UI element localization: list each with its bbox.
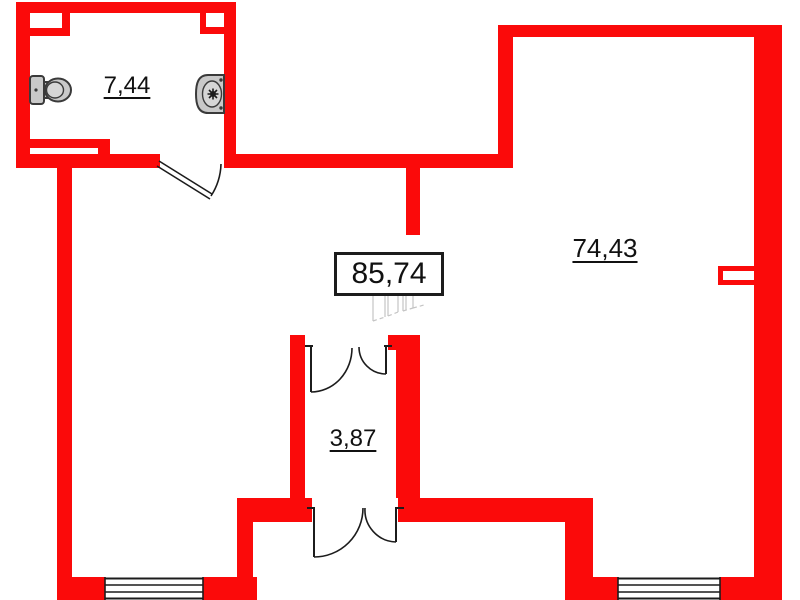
wall-niche-opening [723,271,754,280]
wall-bottom-3 [593,577,618,600]
wall-duct-right-bottom [200,27,236,34]
wall-mainroom-left [498,25,513,168]
wall-slot-top [30,139,110,148]
wall-duct-right-side [200,13,206,27]
wall-entry-right [398,498,593,522]
wall-recess-right [565,498,593,600]
wall-duct-left-side [62,13,70,28]
wall-bathroom-right [224,13,236,168]
wall-hallway-right [396,350,420,498]
door-hallway-top [305,346,392,392]
sink-icon [196,75,224,113]
wall-hallway-left [290,335,305,498]
wall-bathroom-bottom [16,154,160,168]
wall-right-outer [754,37,782,600]
wall-bottom-1 [57,577,105,600]
total-area-label: 85,74 [351,257,426,290]
floor-plan: 7,44 74,43 3,87 85,74 [0,0,800,600]
wall-corridor-top [236,154,513,168]
total-area-box: 85,74 [334,252,444,296]
window-left [105,577,203,600]
door-bathroom [157,161,221,199]
bathroom-area-label: 7,44 [98,72,156,100]
wall-left-outer [57,168,72,600]
door-entrance [307,507,404,557]
wall-bottom-4 [720,577,782,600]
wall-bottom-2 [203,577,257,600]
wall-bathroom-top [16,2,236,13]
wall-mainroom-top [498,25,782,37]
hallway-area-label: 3,87 [324,425,382,453]
wall-slot-end [98,148,110,154]
wall-duct-left-bottom [16,28,70,36]
wall-hallway-right-top [388,335,420,350]
main-room-area-label: 74,43 [562,233,648,264]
window-right [618,577,720,600]
wall-stub [406,168,420,235]
wall-entry-left [237,498,312,522]
wall-bathroom-left [16,2,30,168]
toilet-icon [30,76,71,104]
